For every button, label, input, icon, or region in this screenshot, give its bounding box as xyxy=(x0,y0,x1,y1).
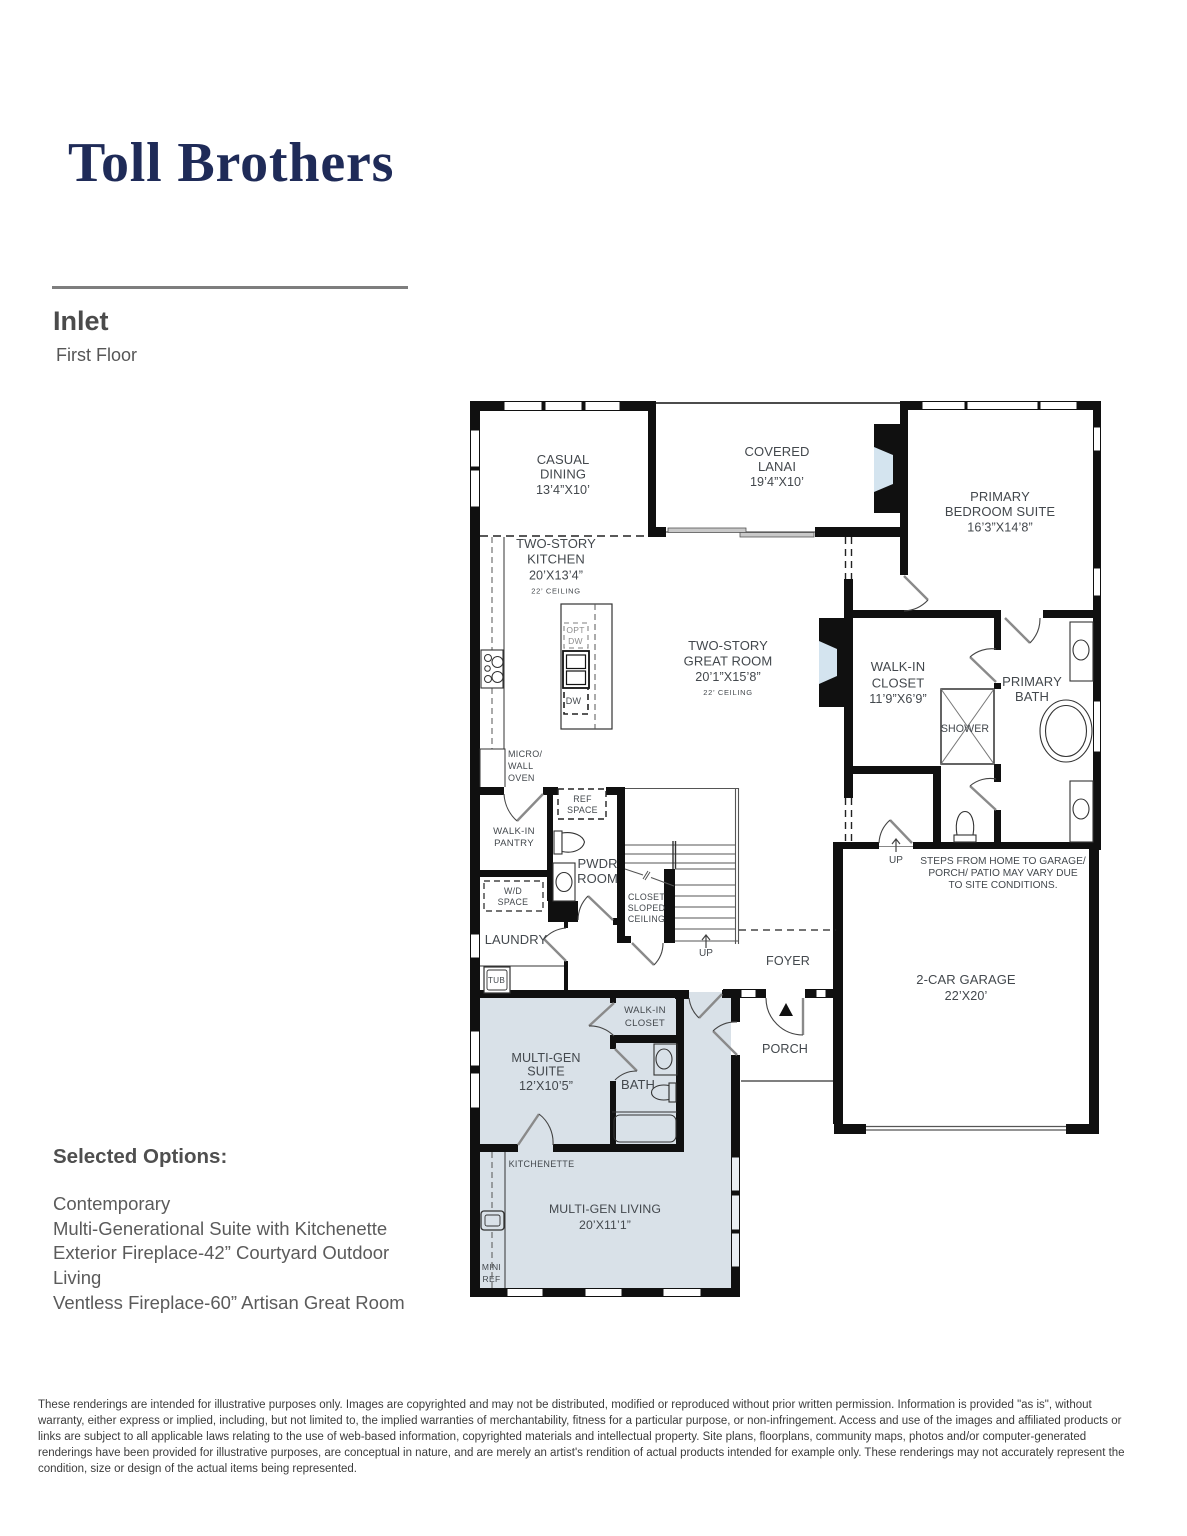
svg-text:19’4”X10’: 19’4”X10’ xyxy=(750,475,804,489)
svg-text:DW: DW xyxy=(568,636,583,646)
svg-text:DINING: DINING xyxy=(540,467,586,482)
svg-text:PORCH/ PATIO MAY VARY DUE: PORCH/ PATIO MAY VARY DUE xyxy=(928,868,1077,879)
svg-text:REF: REF xyxy=(483,1274,501,1284)
svg-text:TO SITE CONDITIONS.: TO SITE CONDITIONS. xyxy=(948,880,1057,891)
svg-text:MINI: MINI xyxy=(482,1262,501,1272)
svg-text:20’X13’4”: 20’X13’4” xyxy=(529,569,583,583)
svg-text:WALK-IN: WALK-IN xyxy=(624,1005,666,1016)
svg-text:COVERED: COVERED xyxy=(745,444,810,459)
svg-text:FOYER: FOYER xyxy=(766,954,810,968)
svg-text:SPACE: SPACE xyxy=(498,897,529,907)
svg-text:2-CAR GARAGE: 2-CAR GARAGE xyxy=(916,972,1016,987)
svg-text:SUITE: SUITE xyxy=(527,1065,565,1079)
svg-text:ROOM: ROOM xyxy=(577,871,618,886)
svg-text:SHOWER: SHOWER xyxy=(941,723,990,735)
svg-text:CLOSET: CLOSET xyxy=(872,676,925,691)
svg-text:BATH: BATH xyxy=(621,1077,655,1092)
svg-text:SLOPED: SLOPED xyxy=(628,903,666,913)
svg-text:STEPS FROM HOME TO GARAGE/: STEPS FROM HOME TO GARAGE/ xyxy=(920,856,1086,867)
svg-text:22’ CEILING: 22’ CEILING xyxy=(531,587,581,596)
svg-text:20’X11’1”: 20’X11’1” xyxy=(579,1218,631,1232)
svg-text:20’1”X15’8”: 20’1”X15’8” xyxy=(695,670,761,684)
svg-text:BATH: BATH xyxy=(1015,689,1049,704)
svg-text:PWDR: PWDR xyxy=(577,856,617,871)
svg-text:OPT: OPT xyxy=(566,625,584,635)
svg-text:CASUAL: CASUAL xyxy=(537,452,590,467)
svg-text:SPACE: SPACE xyxy=(567,805,598,815)
svg-text:PRIMARY: PRIMARY xyxy=(970,489,1030,504)
svg-text:PRIMARY: PRIMARY xyxy=(1002,674,1062,689)
svg-text:UP: UP xyxy=(699,948,713,959)
svg-text:11’9”X6’9”: 11’9”X6’9” xyxy=(869,692,926,706)
svg-text:LAUNDRY: LAUNDRY xyxy=(485,932,548,947)
svg-text:PORCH: PORCH xyxy=(762,1042,808,1056)
svg-text:12’X10’5”: 12’X10’5” xyxy=(519,1079,573,1093)
svg-text:KITCHENETTE: KITCHENETTE xyxy=(509,1159,575,1169)
svg-text:WALL: WALL xyxy=(508,761,533,771)
svg-text:WALK-IN: WALK-IN xyxy=(871,659,925,674)
svg-text:PANTRY: PANTRY xyxy=(494,838,534,849)
svg-text:LANAI: LANAI xyxy=(758,459,796,474)
svg-text:CLOSET: CLOSET xyxy=(625,1018,665,1029)
svg-text:BEDROOM SUITE: BEDROOM SUITE xyxy=(945,504,1056,519)
svg-text:MULTI-GEN LIVING: MULTI-GEN LIVING xyxy=(549,1202,661,1216)
svg-text:UP: UP xyxy=(889,855,903,866)
svg-text:CLOSET: CLOSET xyxy=(628,892,665,902)
svg-text:13’4”X10’: 13’4”X10’ xyxy=(536,483,590,497)
svg-text:CEILING: CEILING xyxy=(628,914,665,924)
svg-text:WALK-IN: WALK-IN xyxy=(493,826,535,837)
svg-text:TWO-STORY: TWO-STORY xyxy=(688,638,768,653)
svg-text:MULTI-GEN: MULTI-GEN xyxy=(511,1051,580,1065)
svg-text:MICRO/: MICRO/ xyxy=(508,749,542,759)
svg-text:KITCHEN: KITCHEN xyxy=(527,552,585,567)
svg-text:TUB: TUB xyxy=(488,976,506,985)
svg-text:GREAT ROOM: GREAT ROOM xyxy=(684,654,773,669)
svg-text:16’3”X14’8”: 16’3”X14’8” xyxy=(967,521,1033,535)
svg-text:OVEN: OVEN xyxy=(508,773,535,783)
svg-text:W/D: W/D xyxy=(504,886,522,896)
svg-text:REF: REF xyxy=(573,794,592,804)
svg-text:22’X20’: 22’X20’ xyxy=(945,989,988,1003)
svg-text:TWO-STORY: TWO-STORY xyxy=(516,536,596,551)
svg-text:22’ CEILING: 22’ CEILING xyxy=(703,688,753,697)
svg-text:DW: DW xyxy=(566,696,582,706)
